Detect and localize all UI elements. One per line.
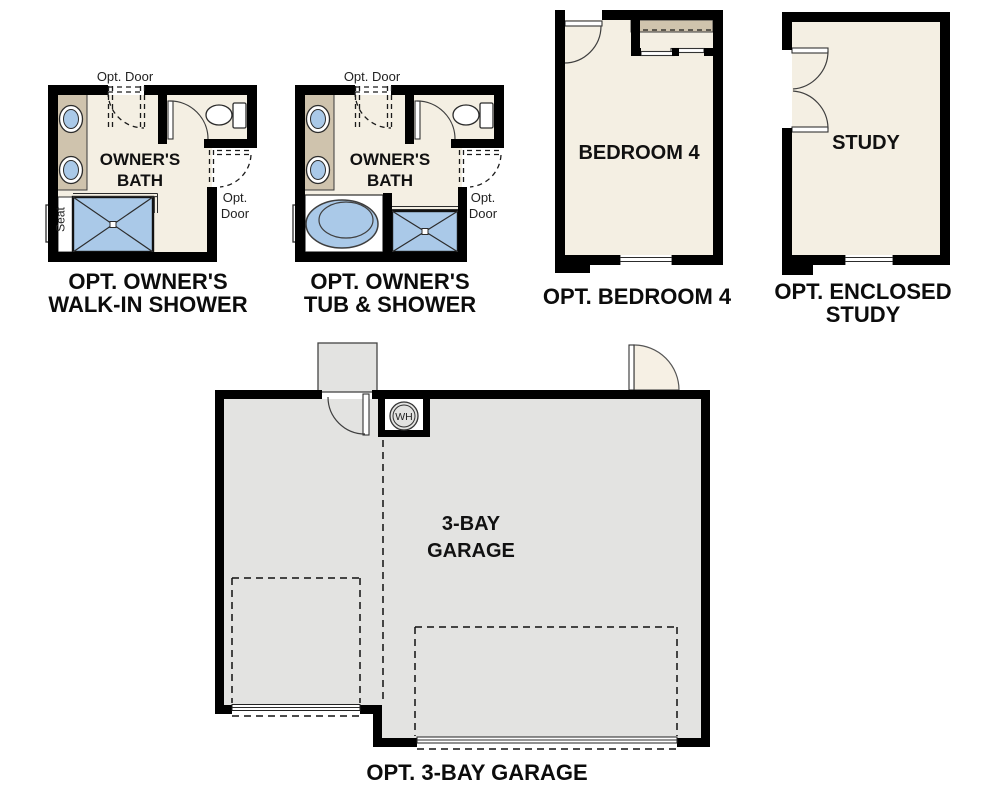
window xyxy=(845,255,893,265)
door-leaf xyxy=(415,101,420,139)
tub-icon xyxy=(305,195,383,252)
floorplan-drawing: Opt. Door OWNER'S BATH Opt. Door Seat OP… xyxy=(0,0,1000,800)
closet-door-panel xyxy=(641,52,674,56)
door-leaf xyxy=(629,345,634,390)
garage-floor xyxy=(224,399,701,738)
opt-door-label: Opt. Door xyxy=(97,69,154,84)
opt-door-label: Door xyxy=(221,206,250,221)
plan-caption: OPT. OWNER'S xyxy=(310,269,469,294)
optional-door-right xyxy=(210,150,253,187)
room-label: BATH xyxy=(367,171,413,190)
plan-caption: OPT. OWNER'S xyxy=(68,269,227,294)
plan-study: STUDY OPT. ENCLOSED STUDY xyxy=(774,12,951,327)
door-leaf xyxy=(168,101,173,139)
door-leaf xyxy=(565,21,602,26)
plan-walkin-shower: Opt. Door OWNER'S BATH Opt. Door Seat OP… xyxy=(46,69,257,317)
water-heater-label: WH xyxy=(395,411,413,423)
entry-landing xyxy=(318,343,377,392)
seat-label: Seat xyxy=(54,206,68,231)
house-door xyxy=(629,345,679,390)
room-label: STUDY xyxy=(832,132,900,154)
plan-caption: OPT. 3-BAY GARAGE xyxy=(366,760,587,785)
opt-door-label: Opt. Door xyxy=(344,69,401,84)
sink-icon xyxy=(307,157,330,184)
plan-caption: STUDY xyxy=(826,302,901,327)
shower-icon xyxy=(73,197,153,252)
plan-bedroom4: BEDROOM 4 OPT. BEDROOM 4 xyxy=(543,10,732,309)
room-label: BEDROOM 4 xyxy=(578,142,700,164)
plan-caption: OPT. BEDROOM 4 xyxy=(543,284,732,309)
opt-door-label: Opt. xyxy=(471,190,496,205)
door-leaf xyxy=(792,127,828,132)
room-label: OWNER'S xyxy=(100,150,181,169)
room-label: 3-BAY xyxy=(442,513,501,535)
opt-door-label: Opt. xyxy=(223,190,248,205)
plan-caption: TUB & SHOWER xyxy=(304,292,476,317)
plan-garage: WH 3-BAY GARAGE OPT. 3-BAY GARAGE xyxy=(215,343,710,785)
door-leaf xyxy=(363,394,369,435)
plan-caption: OPT. ENCLOSED xyxy=(774,279,951,304)
door-leaf xyxy=(792,48,828,53)
room-label: BATH xyxy=(117,171,163,190)
floorplan-sheet: Opt. Door OWNER'S BATH Opt. Door Seat OP… xyxy=(0,0,1000,800)
door-swing-fill xyxy=(634,345,679,390)
water-heater-icon: WH xyxy=(390,402,418,430)
window xyxy=(620,255,672,265)
plan-tub-shower: Opt. Door OWNER'S BATH Opt. Door OPT. OW… xyxy=(293,69,504,317)
sink-icon xyxy=(60,106,83,133)
room-label: OWNER'S xyxy=(350,150,431,169)
sink-icon xyxy=(307,106,330,133)
shower-icon xyxy=(392,211,458,252)
plan-caption: WALK-IN SHOWER xyxy=(48,292,247,317)
optional-door-right xyxy=(460,150,503,187)
sink-icon xyxy=(60,157,83,184)
opt-door-label: Door xyxy=(469,206,498,221)
room-label: GARAGE xyxy=(427,540,515,562)
